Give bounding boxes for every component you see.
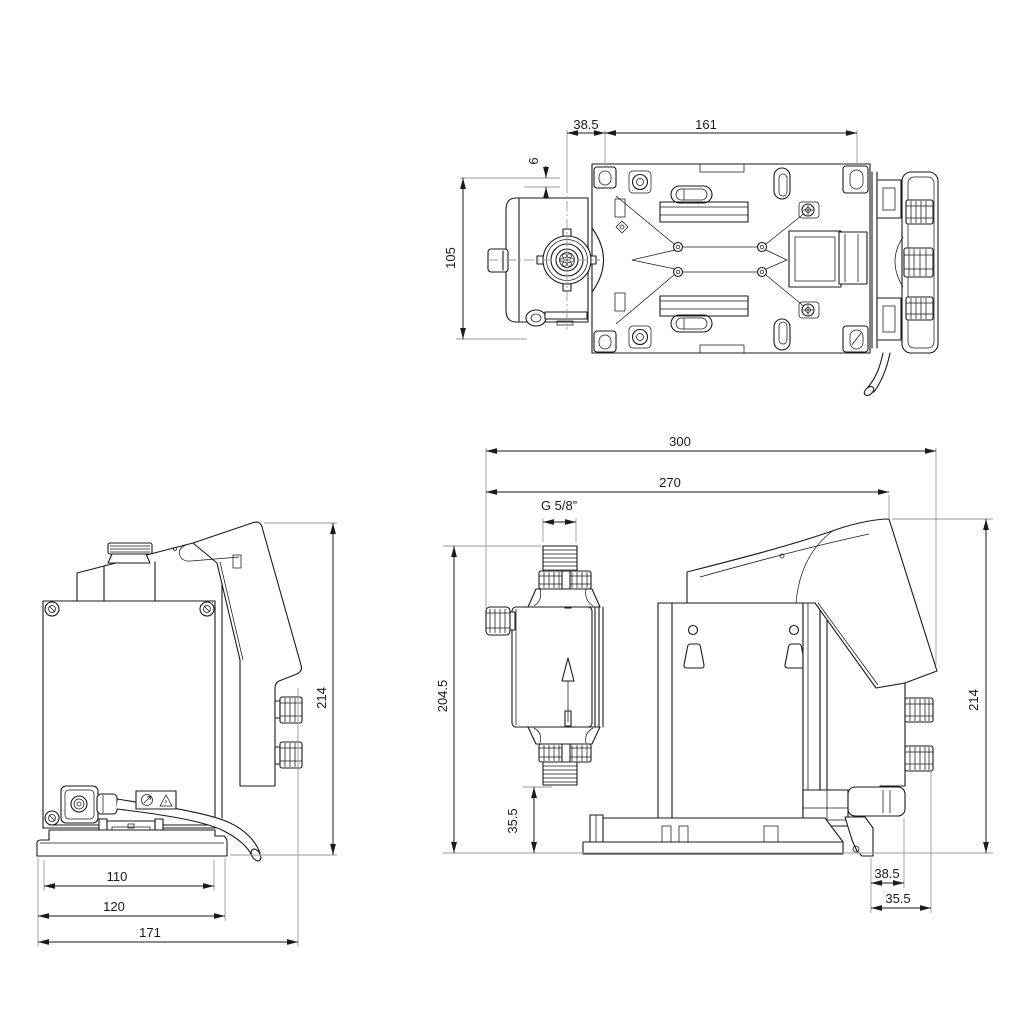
- dim-top-hole-offset: 38.5: [573, 117, 598, 132]
- base-plate-side: [583, 842, 843, 854]
- pump-body-side: [658, 603, 803, 828]
- dim-back-base-width: 120: [103, 899, 125, 914]
- pump-dimensional-drawing: 38.5 161 6 105: [0, 0, 1024, 1024]
- thread-size-label: G 5/8”: [541, 498, 577, 513]
- shaft-cap: [488, 249, 508, 272]
- dim-top-edge-gap: 6: [526, 157, 541, 164]
- terminal-box: [789, 231, 841, 287]
- dim-side-total-length: 300: [669, 434, 691, 449]
- dim-back-height: 214: [314, 687, 329, 709]
- dim-side-rail-offset: 38.5: [874, 866, 899, 881]
- dosing-head: [512, 607, 592, 727]
- dim-back-overall-depth: 171: [139, 925, 161, 940]
- dim-side-connection-height: 204.5: [435, 680, 450, 713]
- dim-top-width: 105: [443, 247, 458, 269]
- mounting-bracket: [848, 787, 905, 816]
- dim-side-knob-offset: 35.5: [885, 891, 910, 906]
- back-side-view: 214 110 120 171: [37, 522, 337, 947]
- dim-side-height: 214: [966, 689, 981, 711]
- base-band-side: [592, 818, 843, 842]
- discharge-connection: [528, 546, 600, 608]
- dim-top-hole-spacing: 161: [695, 117, 717, 132]
- dim-side-body-length: 270: [659, 475, 681, 490]
- dim-side-suction-height: 35.5: [505, 808, 520, 833]
- bleed-valve-knob: [486, 607, 510, 635]
- dim-back-plate-width: 110: [107, 869, 128, 884]
- cable-gland-knobs-top: [904, 200, 933, 320]
- right-side-view: 300 270 G 5/8” 204.5 35.5 214 38.5 35.5: [435, 434, 993, 913]
- top-view: 38.5 161 6 105: [443, 117, 938, 397]
- dimensional-drawing-page: 38.5 161 6 105: [0, 0, 1024, 1024]
- warning-label: [136, 791, 176, 809]
- cable-gland-knobs-side: [905, 698, 933, 771]
